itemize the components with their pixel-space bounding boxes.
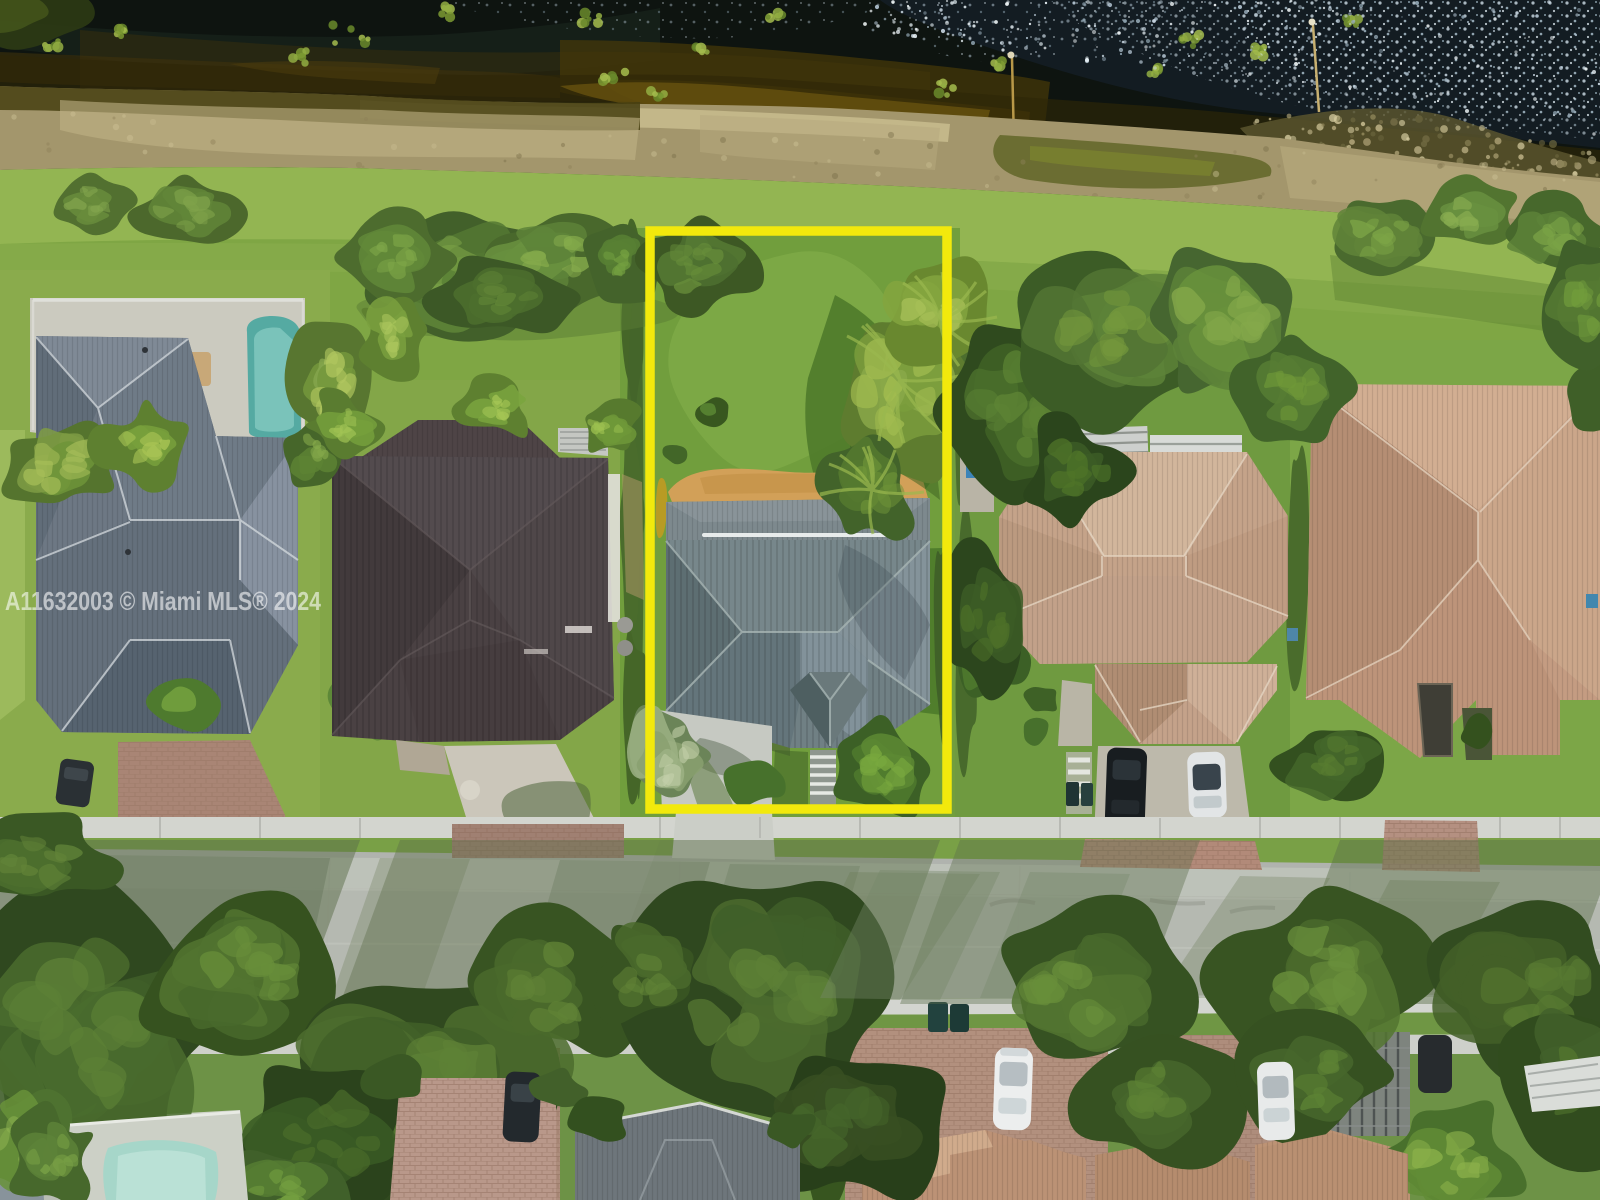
svg-text:A11632003 © Miami MLS® 2024: A11632003 © Miami MLS® 2024 xyxy=(5,586,321,616)
